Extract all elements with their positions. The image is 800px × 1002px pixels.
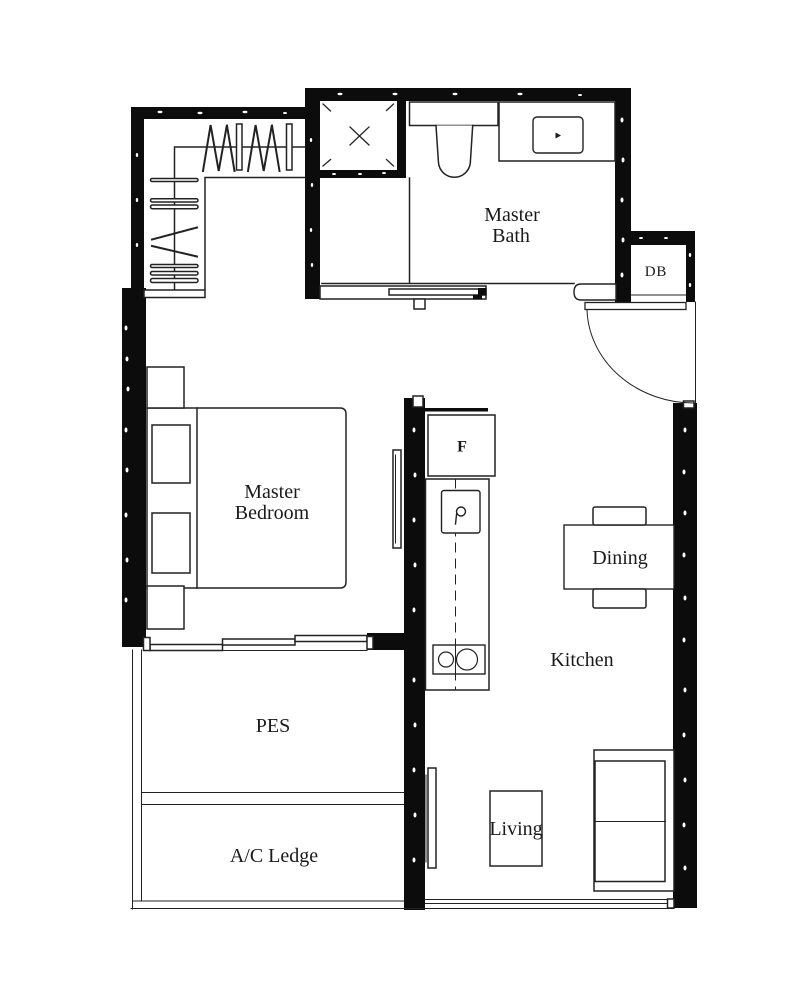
svg-text:F: F: [457, 439, 467, 456]
svg-text:Bath: Bath: [492, 225, 530, 247]
svg-text:Living: Living: [489, 818, 542, 840]
svg-text:Dining: Dining: [592, 547, 648, 569]
svg-text:PES: PES: [256, 715, 290, 737]
svg-text:Master: Master: [484, 204, 540, 226]
svg-text:Bedroom: Bedroom: [235, 502, 310, 524]
svg-text:DB: DB: [645, 264, 667, 280]
svg-text:Kitchen: Kitchen: [550, 649, 613, 671]
svg-text:Master: Master: [244, 481, 300, 503]
svg-text:A/C Ledge: A/C Ledge: [230, 845, 318, 867]
